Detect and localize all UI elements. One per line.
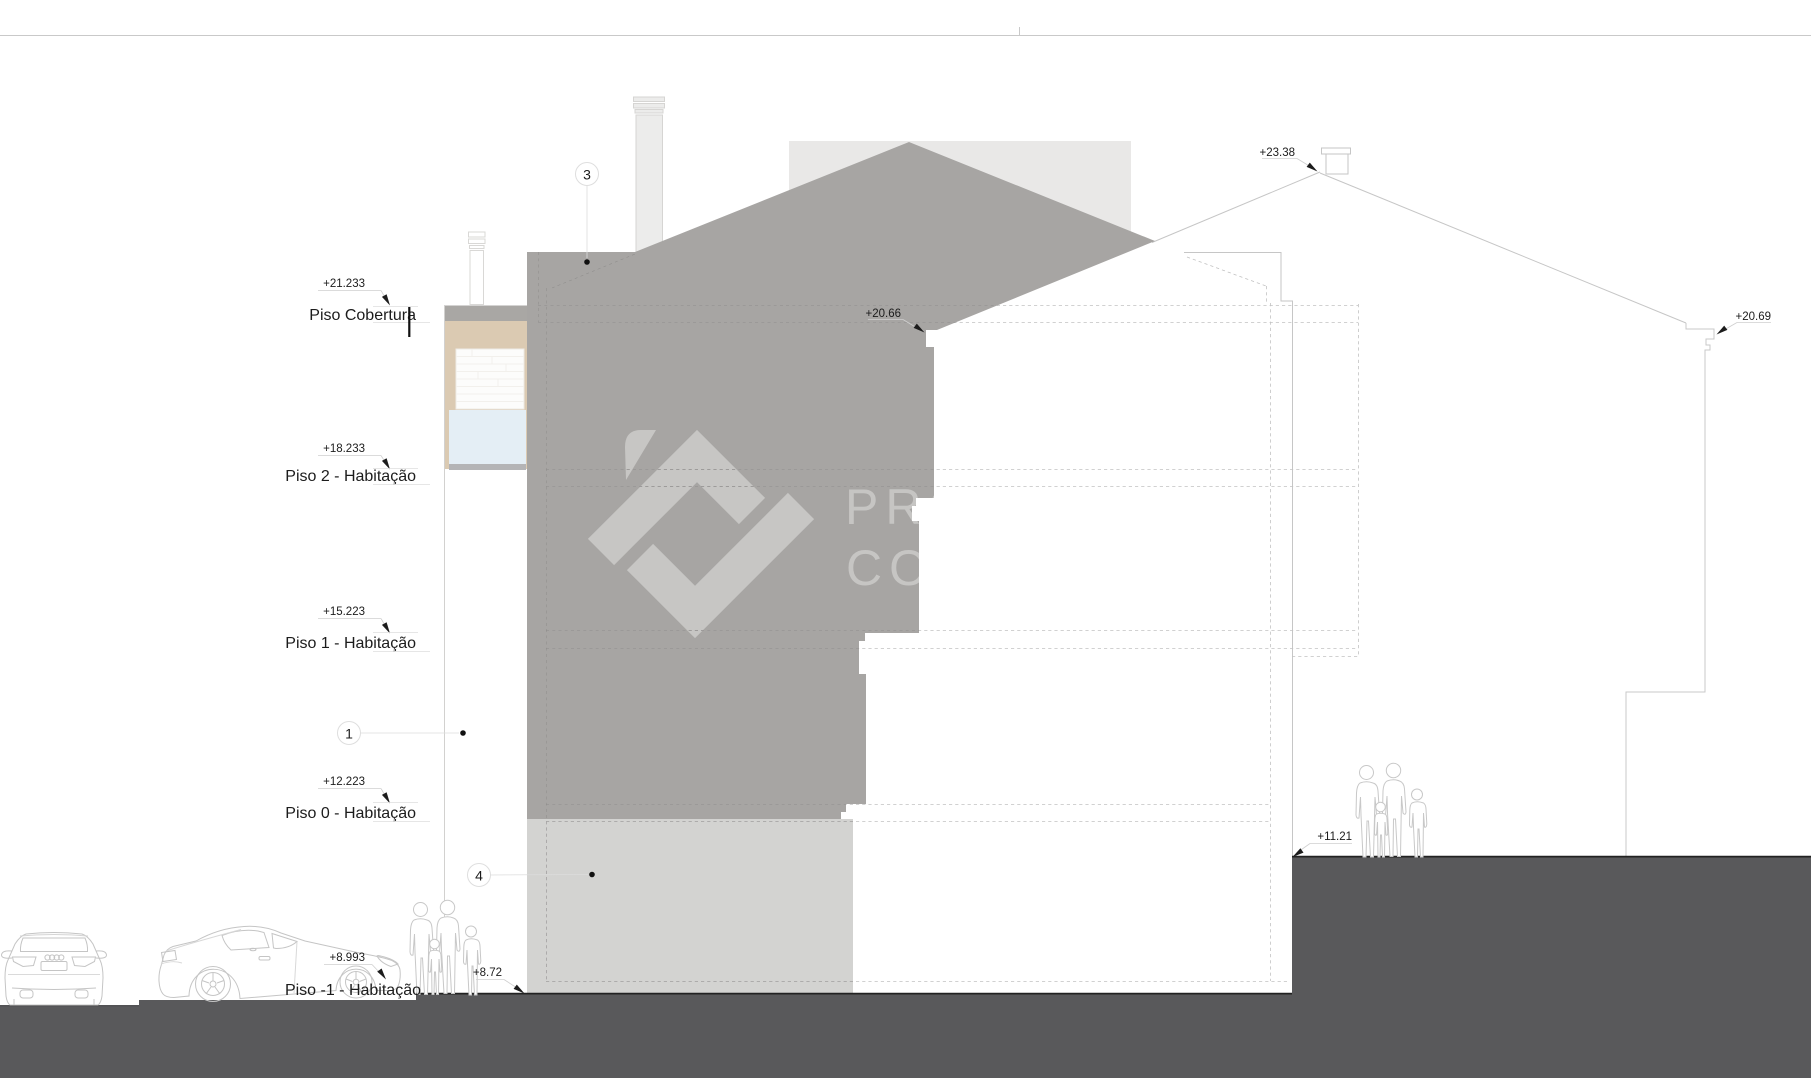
svg-text:+20.66: +20.66: [866, 308, 902, 320]
svg-text:+20.69: +20.69: [1736, 311, 1772, 323]
svg-text:Piso -1 - Habitação: Piso -1 - Habitação: [285, 982, 421, 999]
svg-text:Piso 0 - Habitação: Piso 0 - Habitação: [285, 805, 416, 822]
svg-text:+23.38: +23.38: [1260, 147, 1296, 159]
svg-text:Piso 2 - Habitação: Piso 2 - Habitação: [285, 468, 416, 485]
svg-text:Piso Cobertura: Piso Cobertura: [309, 307, 416, 324]
svg-text:Piso 1 - Habitação: Piso 1 - Habitação: [285, 635, 416, 652]
svg-text:4: 4: [475, 868, 483, 884]
svg-text:+21.233: +21.233: [323, 278, 365, 290]
svg-text:+18.233: +18.233: [323, 443, 365, 455]
svg-text:+15.223: +15.223: [323, 606, 365, 618]
svg-text:3: 3: [583, 167, 591, 183]
svg-text:1: 1: [345, 726, 353, 742]
svg-text:+12.223: +12.223: [323, 776, 365, 788]
svg-text:+8.993: +8.993: [330, 952, 366, 964]
svg-text:+8.72: +8.72: [473, 967, 502, 979]
svg-text:+11.21: +11.21: [1317, 831, 1352, 843]
